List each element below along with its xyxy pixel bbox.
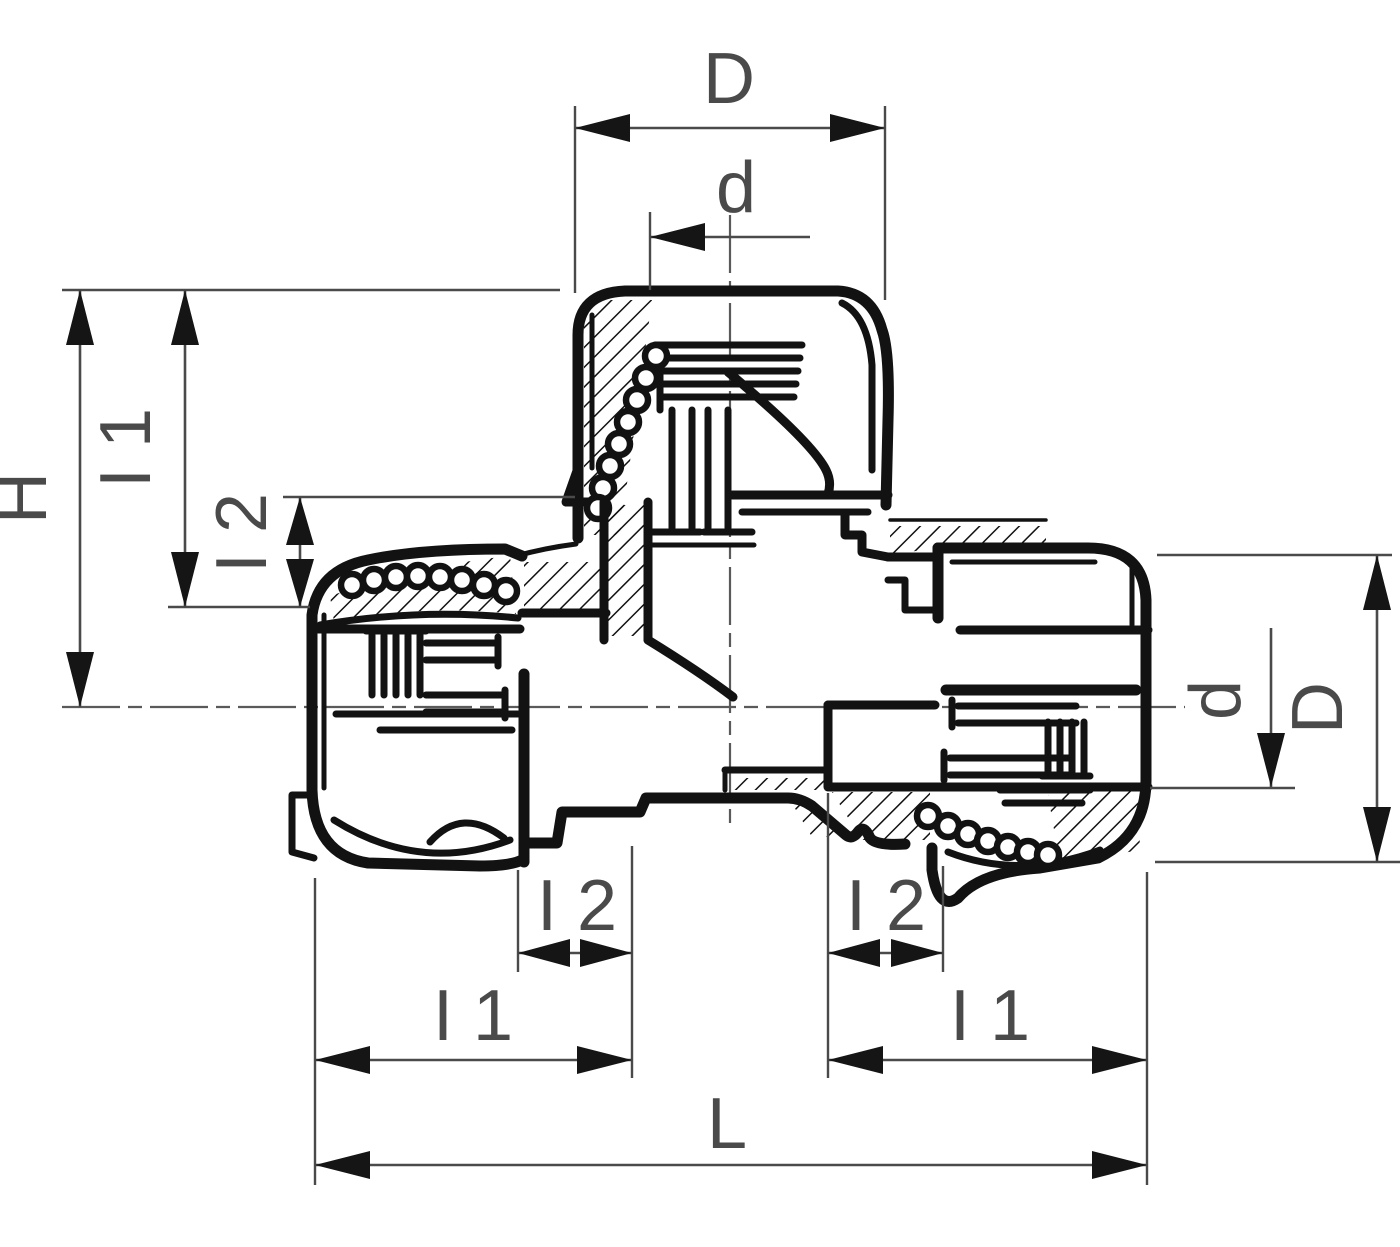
dimension-arrowheads bbox=[66, 114, 1391, 1179]
dimension-labels: D d H I 1 I 2 d D I 2 I 1 I 2 I 1 L bbox=[0, 39, 1358, 1164]
label-left-I1: I 1 bbox=[86, 408, 166, 488]
drawing-page: D d H I 1 I 2 d D I 2 I 1 I 2 I 1 L bbox=[0, 0, 1400, 1247]
right-nut-coil bbox=[917, 805, 1059, 866]
label-top-d: d bbox=[716, 148, 756, 228]
label-right-D: D bbox=[1278, 682, 1358, 734]
label-H: H bbox=[0, 472, 62, 524]
right-nut bbox=[917, 548, 1148, 902]
label-right-d: d bbox=[1176, 680, 1256, 720]
label-left-I2: I 2 bbox=[202, 493, 282, 573]
label-bottom-right-I1: I 1 bbox=[950, 976, 1030, 1056]
label-bottom-left-I2: I 2 bbox=[537, 866, 617, 946]
dimension-lines bbox=[80, 128, 1377, 1165]
technical-drawing-canvas: D d H I 1 I 2 d D I 2 I 1 I 2 I 1 L bbox=[0, 0, 1400, 1247]
label-bottom-right-I2: I 2 bbox=[846, 866, 926, 946]
label-top-D: D bbox=[703, 39, 755, 119]
label-L: L bbox=[707, 1084, 747, 1164]
label-bottom-left-I1: I 1 bbox=[433, 976, 513, 1056]
